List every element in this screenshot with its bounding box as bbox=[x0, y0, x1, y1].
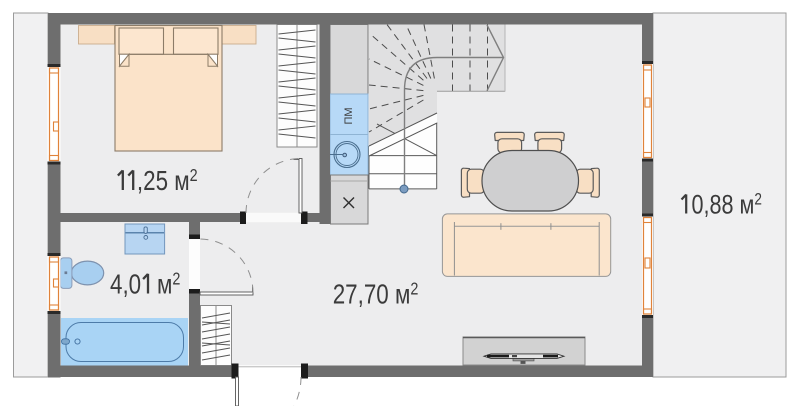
svg-text:27,70 м2: 27,70 м2 bbox=[333, 279, 419, 310]
svg-text:0,88 м2: 0,88 м2 bbox=[692, 190, 762, 220]
svg-text:4,0: 4,0 bbox=[110, 269, 141, 300]
svg-text:,25 м2: ,25 м2 bbox=[137, 166, 198, 197]
svg-text:ПМ: ПМ bbox=[343, 107, 355, 124]
